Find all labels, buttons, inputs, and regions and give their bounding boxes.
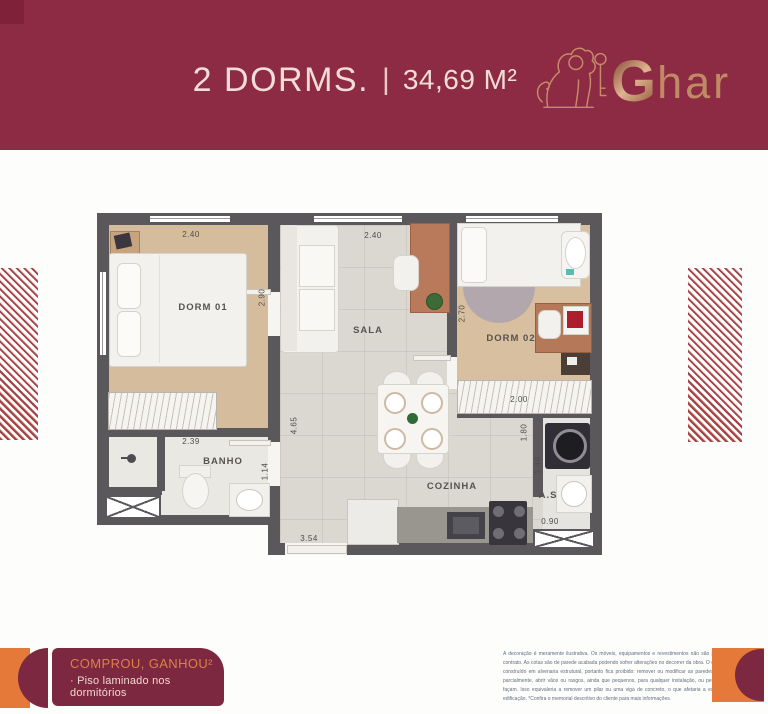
dim-as-depth-2: 1.49 [534, 449, 543, 483]
title-separator: | [382, 63, 390, 97]
dorm1-bed-seam [159, 255, 160, 363]
sala-sofa-cushion-1 [299, 245, 335, 287]
wall-shower-stub-v [157, 435, 165, 491]
title-area: 34,69 M² [403, 64, 518, 96]
dim-sala-width: 2.40 [353, 231, 393, 240]
dorm2-label: DORM 02 [471, 333, 551, 344]
dorm1-window [150, 216, 230, 222]
plate-1 [384, 392, 406, 414]
sala-desk-chair [393, 255, 419, 291]
dorm2-door-opening [447, 357, 457, 389]
banho-sink-basin [236, 489, 263, 511]
dorm1-wardrobe [108, 392, 217, 430]
plate-4 [421, 428, 443, 450]
wall-shower-stub-h [103, 487, 162, 495]
title-dorms: 2 DORMS. [193, 61, 369, 100]
brand-initial: G [611, 53, 656, 111]
sala-label: SALA [338, 325, 398, 336]
sala-sofa-back [281, 225, 297, 351]
stove-burner-2 [514, 506, 525, 517]
dorm2-pillow [461, 227, 487, 283]
washing-machine-drum [553, 429, 587, 463]
dim-dorm2-depth: 2.70 [458, 297, 467, 331]
kitchen-fridge [347, 499, 399, 545]
banho-door-leaf [229, 440, 271, 446]
dim-banho-width: 2.39 [171, 437, 211, 446]
banho-door-opening [268, 442, 280, 486]
dorm1-pillow-2 [117, 311, 141, 357]
stove-burner-4 [514, 528, 525, 539]
dim-dorm1-depth: 2.90 [258, 281, 267, 315]
entry-door-leaf [287, 545, 347, 554]
dorm2-door-leaf [413, 355, 451, 361]
dorm2-crib-inner [565, 237, 586, 269]
dorm1-side-window [100, 272, 106, 355]
brand-logo: G har [533, 40, 743, 124]
promo-item: · Piso laminado nos dormitórios [70, 675, 224, 699]
dorm1-pillow-1 [117, 263, 141, 309]
dorm1-door-opening [268, 292, 280, 336]
shaft-box-right [533, 529, 595, 549]
banho-label: BANHO [195, 456, 251, 467]
dim-as-depth-1: 1.80 [520, 416, 529, 450]
dorm2-window [466, 216, 558, 222]
laundry-tank-basin [561, 481, 587, 507]
sala-plant [426, 293, 443, 310]
promo-headline: COMPROU, GANHOU² [70, 656, 224, 671]
right-stripe-decoration [688, 268, 742, 442]
dim-banho-depth: 1.14 [261, 455, 270, 489]
dorm2-shelf-item [567, 357, 577, 365]
dim-corridor-depth: 4.65 [290, 409, 299, 443]
table-centerpiece [407, 413, 418, 424]
header-accent-square [0, 0, 24, 24]
promo-badge: COMPROU, GANHOU² · Piso laminado nos dor… [52, 648, 224, 706]
lion-key-icon [533, 42, 615, 123]
cozinha-label: COZINHA [417, 481, 487, 492]
floor-plan: DORM 01 SALA DORM 02 BANHO COZINHA A.S 2… [95, 207, 607, 587]
stove-burner-1 [493, 506, 504, 517]
sala-window [314, 216, 402, 222]
dim-as-width: 0.90 [535, 517, 565, 526]
kitchen-sink-basin [453, 517, 479, 534]
header-band: 2 DORMS. | 34,69 M² G har [0, 0, 768, 150]
left-stripe-decoration [0, 268, 38, 440]
dorm1-label: DORM 01 [163, 302, 243, 313]
stove-burner-3 [493, 528, 504, 539]
shaft-box-left [105, 495, 161, 519]
dim-cozinha-width: 3.54 [291, 534, 327, 543]
dorm2-poster-art [567, 311, 583, 328]
footer-circle-right [735, 649, 764, 701]
wall-left [97, 213, 109, 525]
dim-dorm2-closet-width: 2.00 [499, 395, 539, 404]
sala-sofa-cushion-2 [299, 289, 335, 331]
dim-dorm1-width: 2.40 [171, 230, 211, 239]
plate-3 [384, 428, 406, 450]
page-title: 2 DORMS. | 34,69 M² [150, 56, 560, 104]
as-label: A.S [536, 490, 560, 501]
dorm2-teal-decor [566, 269, 574, 275]
shower-arm [121, 457, 129, 459]
page: 2 DORMS. | 34,69 M² G har [0, 0, 768, 714]
footer-orange-square-right [712, 648, 764, 702]
plate-2 [421, 392, 443, 414]
brand-name: har [657, 60, 731, 105]
toilet-bowl [182, 473, 209, 509]
